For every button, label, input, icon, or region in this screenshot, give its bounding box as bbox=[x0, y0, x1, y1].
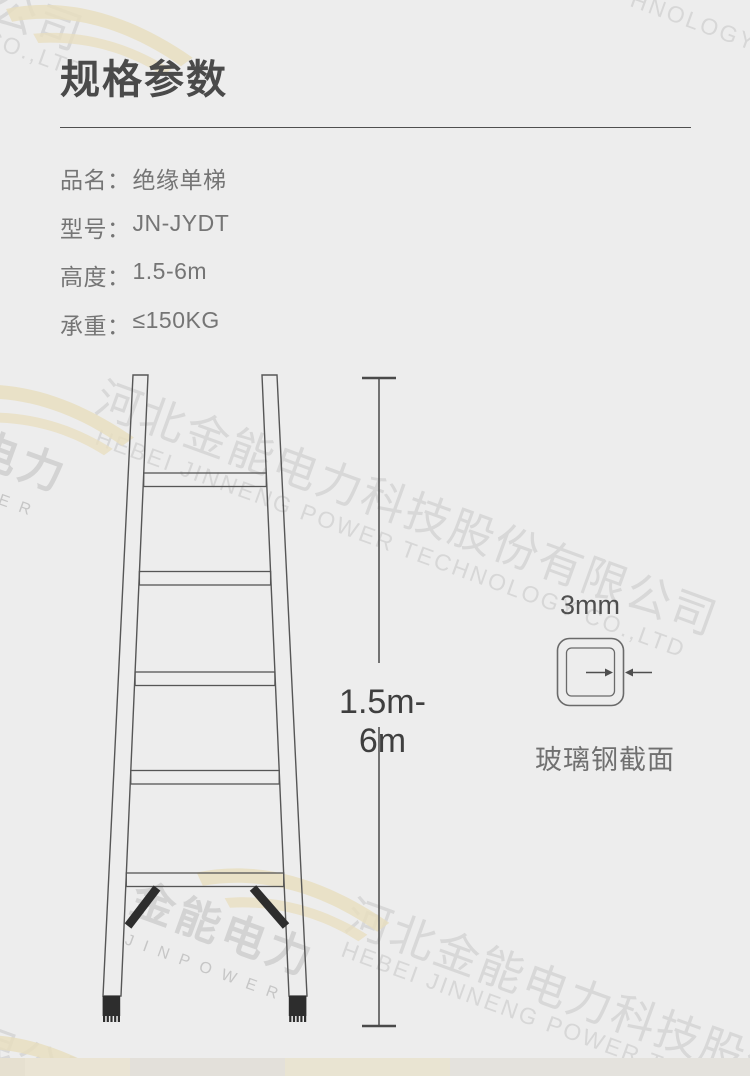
spec-page: 公司 CO.,LTD HNOLOGY CO 河北金能电力科技股份有限公司 HEB… bbox=[0, 0, 750, 1076]
spec-label: 高度： bbox=[60, 258, 131, 292]
spec-row-model: 型号： JN-JYDT bbox=[60, 210, 229, 259]
bottom-strip-segment bbox=[0, 1058, 25, 1076]
cross-section-illustration bbox=[556, 637, 656, 707]
spec-value: 1.5-6m bbox=[133, 258, 208, 285]
spec-row-height: 高度： 1.5-6m bbox=[60, 258, 229, 307]
bottom-strip-segment bbox=[285, 1058, 450, 1076]
ladder-foot-right bbox=[289, 996, 307, 1022]
watermark-company-cn-fragment-top-left: 公司 bbox=[0, 0, 94, 63]
thickness-arrow-right-icon bbox=[586, 669, 613, 677]
wall-thickness-label: 3mm bbox=[540, 590, 640, 621]
ladder-rung bbox=[135, 672, 275, 686]
watermark-company-en-fragment-top-right: HNOLOGY CO bbox=[627, 0, 750, 73]
ladder-foot-left bbox=[103, 996, 121, 1022]
bottom-strip-segment bbox=[130, 1058, 285, 1076]
height-range-label: 1.5m-6m bbox=[320, 683, 445, 761]
spec-value: ≤150KG bbox=[133, 307, 220, 334]
cross-section-caption: 玻璃钢截面 bbox=[520, 738, 690, 777]
bottom-strip-segment bbox=[450, 1058, 750, 1076]
spec-label: 型号： bbox=[60, 210, 131, 244]
spec-label: 承重： bbox=[60, 307, 131, 341]
bottom-strip-segment bbox=[25, 1058, 130, 1076]
ladder-brace-right bbox=[253, 888, 286, 926]
spec-row-load: 承重： ≤150KG bbox=[60, 307, 229, 356]
spec-value: 绝缘单梯 bbox=[133, 161, 227, 195]
spec-label: 品名： bbox=[60, 161, 131, 195]
bottom-strip bbox=[0, 1058, 750, 1076]
spec-row-product-name: 品名： 绝缘单梯 bbox=[60, 161, 229, 210]
ladder-rung bbox=[139, 572, 270, 586]
spec-value: JN-JYDT bbox=[133, 210, 230, 237]
title-divider bbox=[60, 127, 691, 128]
ladder-rung bbox=[144, 473, 267, 487]
page-title: 规格参数 bbox=[60, 56, 228, 104]
ladder-rung bbox=[131, 771, 279, 785]
thickness-arrow-left-icon bbox=[625, 669, 652, 677]
ladder-brace-left bbox=[128, 888, 157, 926]
spec-list: 品名： 绝缘单梯 型号： JN-JYDT 高度： 1.5-6m 承重： ≤150… bbox=[60, 161, 229, 355]
ladder-rung bbox=[126, 873, 283, 887]
